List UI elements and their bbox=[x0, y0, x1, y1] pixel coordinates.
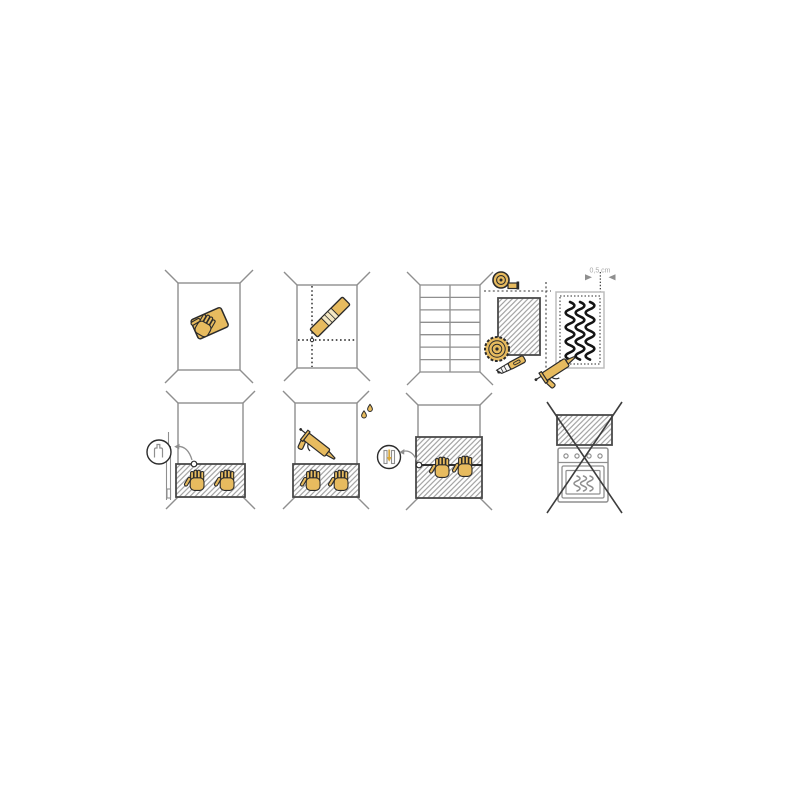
instruction-sheet: 0,5 cm bbox=[0, 0, 800, 800]
edge-profile-strip bbox=[167, 432, 171, 500]
panel-corner-marker bbox=[191, 461, 197, 467]
water-drop-icon bbox=[362, 411, 367, 418]
measuring-tape-icon bbox=[493, 272, 519, 290]
step-5-mount-first-panel bbox=[147, 391, 255, 509]
water-drop-icon bbox=[368, 404, 373, 411]
step-6-seal-top-edge bbox=[283, 391, 372, 509]
callout-arrow bbox=[399, 449, 417, 461]
step-1-clean-wall bbox=[165, 270, 253, 383]
magnifier-detail-circle bbox=[147, 440, 171, 464]
step-2-mark-guide-lines bbox=[284, 272, 370, 381]
gap-measurement-label: 0,5 cm bbox=[589, 268, 610, 275]
tiled-wall-outline bbox=[407, 272, 493, 385]
guide-intersection-dot bbox=[310, 338, 313, 341]
gap-dimension-arrows bbox=[585, 272, 616, 293]
step-4-apply-adhesive: 0,5 cm bbox=[533, 268, 616, 395]
joint-profile-detail-circle bbox=[378, 446, 401, 469]
step-3-measure-and-cut bbox=[407, 272, 551, 385]
step-8-not-above-oven bbox=[547, 402, 622, 513]
step-7-join-second-panel bbox=[378, 393, 493, 510]
circular-saw-blade-icon bbox=[485, 337, 509, 361]
installation-diagram: 0,5 cm bbox=[0, 0, 800, 800]
seam-marker bbox=[416, 462, 422, 468]
